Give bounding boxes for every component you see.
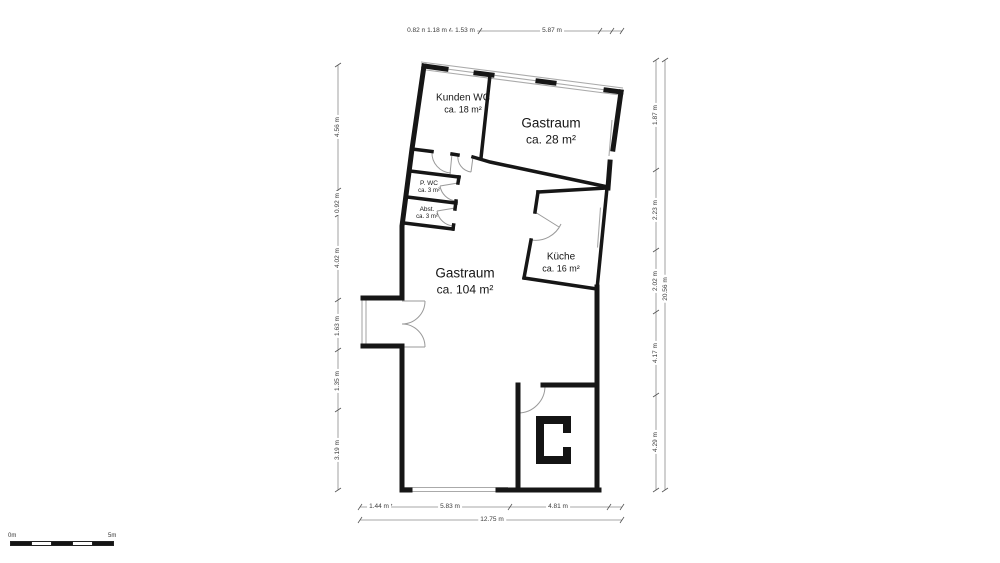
- window-line: [402, 488, 508, 492]
- room-label-gastraum-104: Gastraum ca. 104 m²: [435, 264, 494, 297]
- door-arc: [531, 212, 561, 240]
- window-line: [424, 66, 621, 92]
- door-arc: [402, 324, 425, 347]
- door-arc: [458, 155, 473, 172]
- scale-bar: [10, 541, 114, 546]
- dim-label: 4.29 m: [653, 430, 660, 454]
- room-name: P. WC: [418, 180, 440, 188]
- dim-label: 1.18 m: [425, 28, 449, 35]
- scale-bar-segment: [93, 542, 113, 545]
- wall: [481, 75, 490, 158]
- dim-label-total: 12.75 m: [478, 517, 506, 524]
- room-name: Küche: [542, 251, 580, 264]
- floorplan-drawing: [0, 0, 1000, 563]
- door-arc: [432, 152, 452, 174]
- wall: [412, 149, 608, 187]
- dim-label: 3.19 m: [335, 438, 342, 462]
- scale-bar-segment: [72, 542, 94, 545]
- scale-bar-max-label: 5m: [108, 533, 116, 539]
- scale-bar-segment: [52, 542, 72, 545]
- dim-label: 1.35 m: [335, 369, 342, 393]
- dim-label: 1.44 m: [367, 504, 391, 511]
- door-arc: [402, 301, 425, 324]
- dim-label: 2.23 m: [653, 198, 660, 222]
- wall: [538, 81, 554, 83]
- masonry-core: [536, 416, 571, 464]
- dim-label: 0.92 m: [335, 191, 342, 215]
- wall: [524, 278, 597, 289]
- door-arc: [440, 183, 458, 201]
- wall: [424, 66, 446, 69]
- room-area: ca. 3 m²: [418, 188, 440, 196]
- wall: [410, 171, 459, 177]
- masonry-core-shape: [536, 416, 571, 464]
- wall: [407, 197, 456, 203]
- wall: [538, 188, 607, 192]
- scale-bar-segment: [11, 542, 31, 545]
- dim-label: 4.56 m: [335, 115, 342, 139]
- scale-bar-segment: [31, 542, 53, 545]
- room-label-gastraum-28: Gastraum ca. 28 m²: [521, 114, 580, 147]
- dim-label: 2.02 m: [653, 269, 660, 293]
- room-label-p-wc: P. WC ca. 3 m²: [418, 180, 440, 196]
- dim-label: 5.87 m: [540, 28, 564, 35]
- room-area: ca. 104 m²: [435, 282, 494, 298]
- room-area: ca. 18 m²: [436, 105, 490, 117]
- window-line: [421, 62, 623, 88]
- dim-label: 4.81 m: [546, 504, 570, 511]
- wall: [524, 192, 538, 278]
- dim-label: 1.53 m: [453, 28, 477, 35]
- room-label-kueche: Küche ca. 16 m²: [542, 251, 580, 276]
- dim-label: 4.02 m: [335, 246, 342, 270]
- room-name: Kunden WC: [436, 92, 490, 105]
- dim-label: 1.63 m: [335, 314, 342, 338]
- room-name: Abst.: [416, 206, 438, 214]
- door-arc: [518, 386, 545, 413]
- dim-label: 4.17 m: [653, 341, 660, 365]
- dim-label-total: 20.56 m: [663, 275, 670, 303]
- dim-label: 5.83 m: [438, 504, 462, 511]
- dim-label: 1.87 m: [653, 103, 660, 127]
- floorplan-canvas: Kunden WC ca. 18 m² Gastraum ca. 28 m² P…: [0, 0, 1000, 563]
- room-label-abstellraum: Abst. ca. 3 m²: [416, 206, 438, 222]
- room-area: ca. 3 m²: [416, 214, 438, 222]
- room-area: ca. 28 m²: [521, 132, 580, 148]
- room-label-kunden-wc: Kunden WC ca. 18 m²: [436, 92, 490, 117]
- room-name: Gastraum: [435, 264, 494, 282]
- window-line: [362, 300, 366, 345]
- room-area: ca. 16 m²: [542, 264, 580, 276]
- scale-bar-min-label: 0m: [8, 533, 16, 539]
- room-name: Gastraum: [521, 114, 580, 132]
